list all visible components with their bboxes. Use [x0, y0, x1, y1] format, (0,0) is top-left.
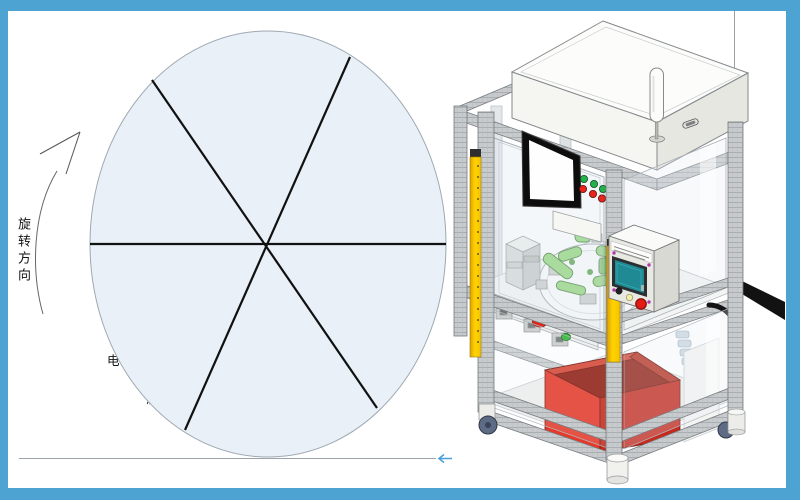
pendant-button-black [616, 288, 622, 294]
frame-post-side-left [454, 106, 467, 336]
frame-post-right [728, 122, 743, 432]
rotation-direction-label: 旋转方向 [14, 217, 33, 312]
teach-pendant [609, 225, 679, 312]
leveling-foot [607, 454, 628, 484]
exit-chute [742, 281, 785, 320]
rotary-station-diagram [19, 31, 452, 463]
rotation-arrow-icon [36, 132, 80, 314]
glass-reflection-streak [700, 143, 716, 277]
safety-light-curtain [470, 149, 481, 357]
emergency-stop-button [636, 299, 646, 309]
caster-wheel [479, 404, 497, 434]
left-arrow-icon [439, 455, 452, 463]
machine-cad-render [454, 9, 785, 484]
pendant-button-yellow [626, 294, 632, 300]
figure-canvas [0, 0, 800, 500]
glass-reflection-streak [706, 314, 720, 402]
